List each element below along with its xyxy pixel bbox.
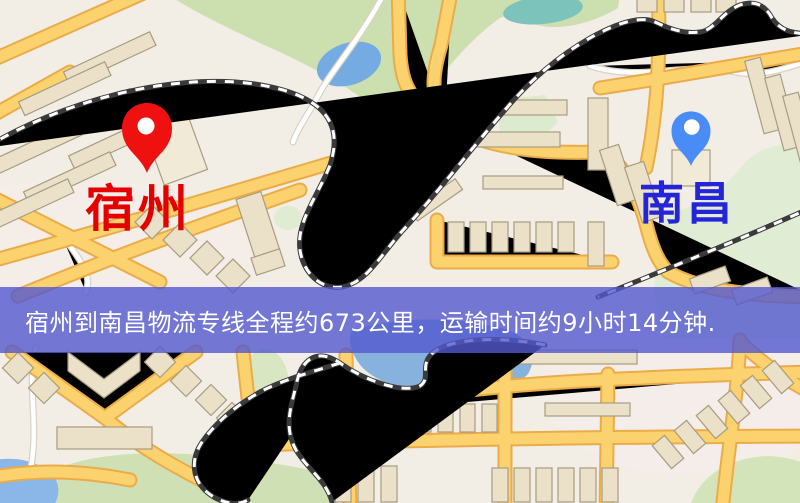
route-summary-text: 宿州到南昌物流专线全程约673公里，运输时间约9小时14分钟. xyxy=(25,303,716,338)
map-view[interactable]: 宿州 南昌 宿州到南昌物流专线全程约673公里，运输时间约9小时14分钟. xyxy=(0,0,800,503)
destination-city-label: 南昌 xyxy=(639,177,735,230)
route-info-banner: 宿州到南昌物流专线全程约673公里，运输时间约9小时14分钟. xyxy=(0,287,800,353)
map-canvas: 宿州 南昌 xyxy=(0,0,800,503)
origin-city-label: 宿州 xyxy=(85,179,191,238)
